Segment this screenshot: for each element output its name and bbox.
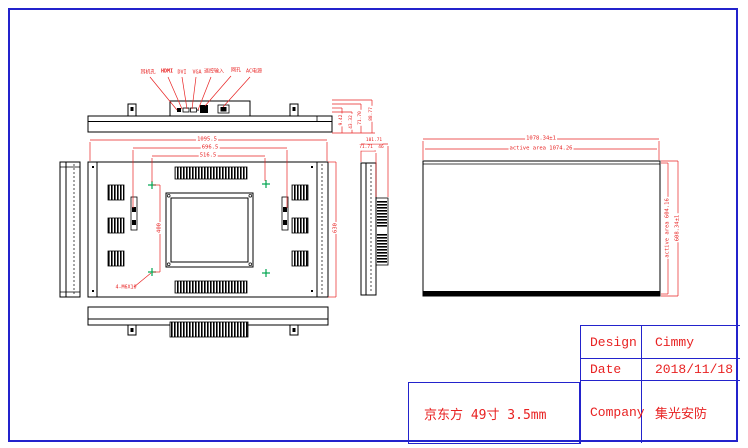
title-block-row-company: Company 集光安防 [581, 381, 740, 443]
dim-screen-height: 608.34±1 [675, 214, 681, 243]
screen-front-view [423, 161, 660, 296]
connector-label-lan: 网孔 [231, 69, 241, 74]
date-label: Date [581, 359, 642, 380]
dim-side-total: 101.71 [365, 139, 383, 144]
dim-depth-4: 88.77 [370, 106, 375, 122]
vesa-note: 4-M6X10 [115, 286, 136, 291]
bottom-view [88, 307, 328, 337]
vent-grille-left [108, 185, 124, 200]
title-block-row-date: Date 2018/11/18 [581, 359, 740, 381]
connector-label-dvi: DVI [177, 71, 186, 76]
connector-label-audio: 耳机孔 [140, 71, 155, 76]
dim-handle-span: 696.5 [201, 145, 220, 151]
vent-grille-right [292, 251, 308, 266]
design-value: Cimmy [642, 326, 740, 358]
hdmi-port [183, 108, 189, 112]
dim-side-connector: 46 [377, 146, 384, 151]
vent-grille-right [292, 218, 308, 233]
dim-depth-1: 9.42 [340, 114, 345, 127]
design-label: Design [581, 326, 642, 358]
dim-depth-3: 71.70 [359, 110, 364, 126]
left-side-view [60, 162, 80, 297]
top-view [88, 101, 332, 132]
connector-label-remote: 遥控输入 [204, 70, 224, 75]
right-side-view [361, 163, 388, 295]
handle-slot-left [131, 197, 137, 230]
vent-grille-bottom [175, 281, 247, 293]
dim-total-width: 1095.5 [196, 137, 218, 143]
dim-depth-2: 43.32 [350, 114, 355, 130]
connector-label-ac: AC电源 [246, 70, 262, 75]
vga-block [200, 105, 208, 113]
speaker-grille [170, 322, 248, 337]
dvi-port [191, 108, 197, 112]
vent-grille-left [108, 251, 124, 266]
date-value: 2018/11/18 [642, 359, 740, 380]
connector-label-hdmi: HDMI [161, 70, 173, 75]
dim-active-height: active area 604.16 [665, 197, 671, 259]
dim-vesa-height: 400 [157, 222, 163, 234]
cad-drawing-sheet: 耳机孔 HDMI DVI VGA 遥控输入 网孔 AC电源 1095.5 696… [0, 0, 748, 448]
title-block-row-design: Design Cimmy [581, 326, 740, 359]
dim-active-width: active area 1074.26 [509, 146, 574, 152]
dim-vesa-span: 516.5 [199, 153, 218, 159]
vent-grille-top [175, 167, 247, 179]
dim-total-height: 630 [333, 222, 339, 234]
rear-view [88, 162, 328, 297]
title-block: Design Cimmy Date 2018/11/18 Company 集光安… [580, 325, 740, 444]
company-value: 集光安防 [642, 381, 740, 443]
panel-spec-text: 京东方 49寸 3.5mm [409, 404, 546, 423]
panel-spec-note-box: 京东方 49寸 3.5mm [408, 382, 580, 444]
vent-grille-left [108, 218, 124, 233]
audio-jack [177, 108, 181, 112]
company-label: Company [581, 381, 642, 443]
screen-dim-lines [423, 139, 678, 296]
dim-screen-width: 1078.34±1 [525, 136, 557, 142]
vent-grille-right [292, 185, 308, 200]
side-dim-lines [361, 144, 388, 197]
connector-label-vga: VGA [192, 71, 201, 76]
rear-opening [166, 193, 253, 267]
bezel-bottom [423, 291, 660, 296]
connector-leaders [150, 76, 250, 110]
dim-side-body: 71.71 [358, 146, 374, 151]
